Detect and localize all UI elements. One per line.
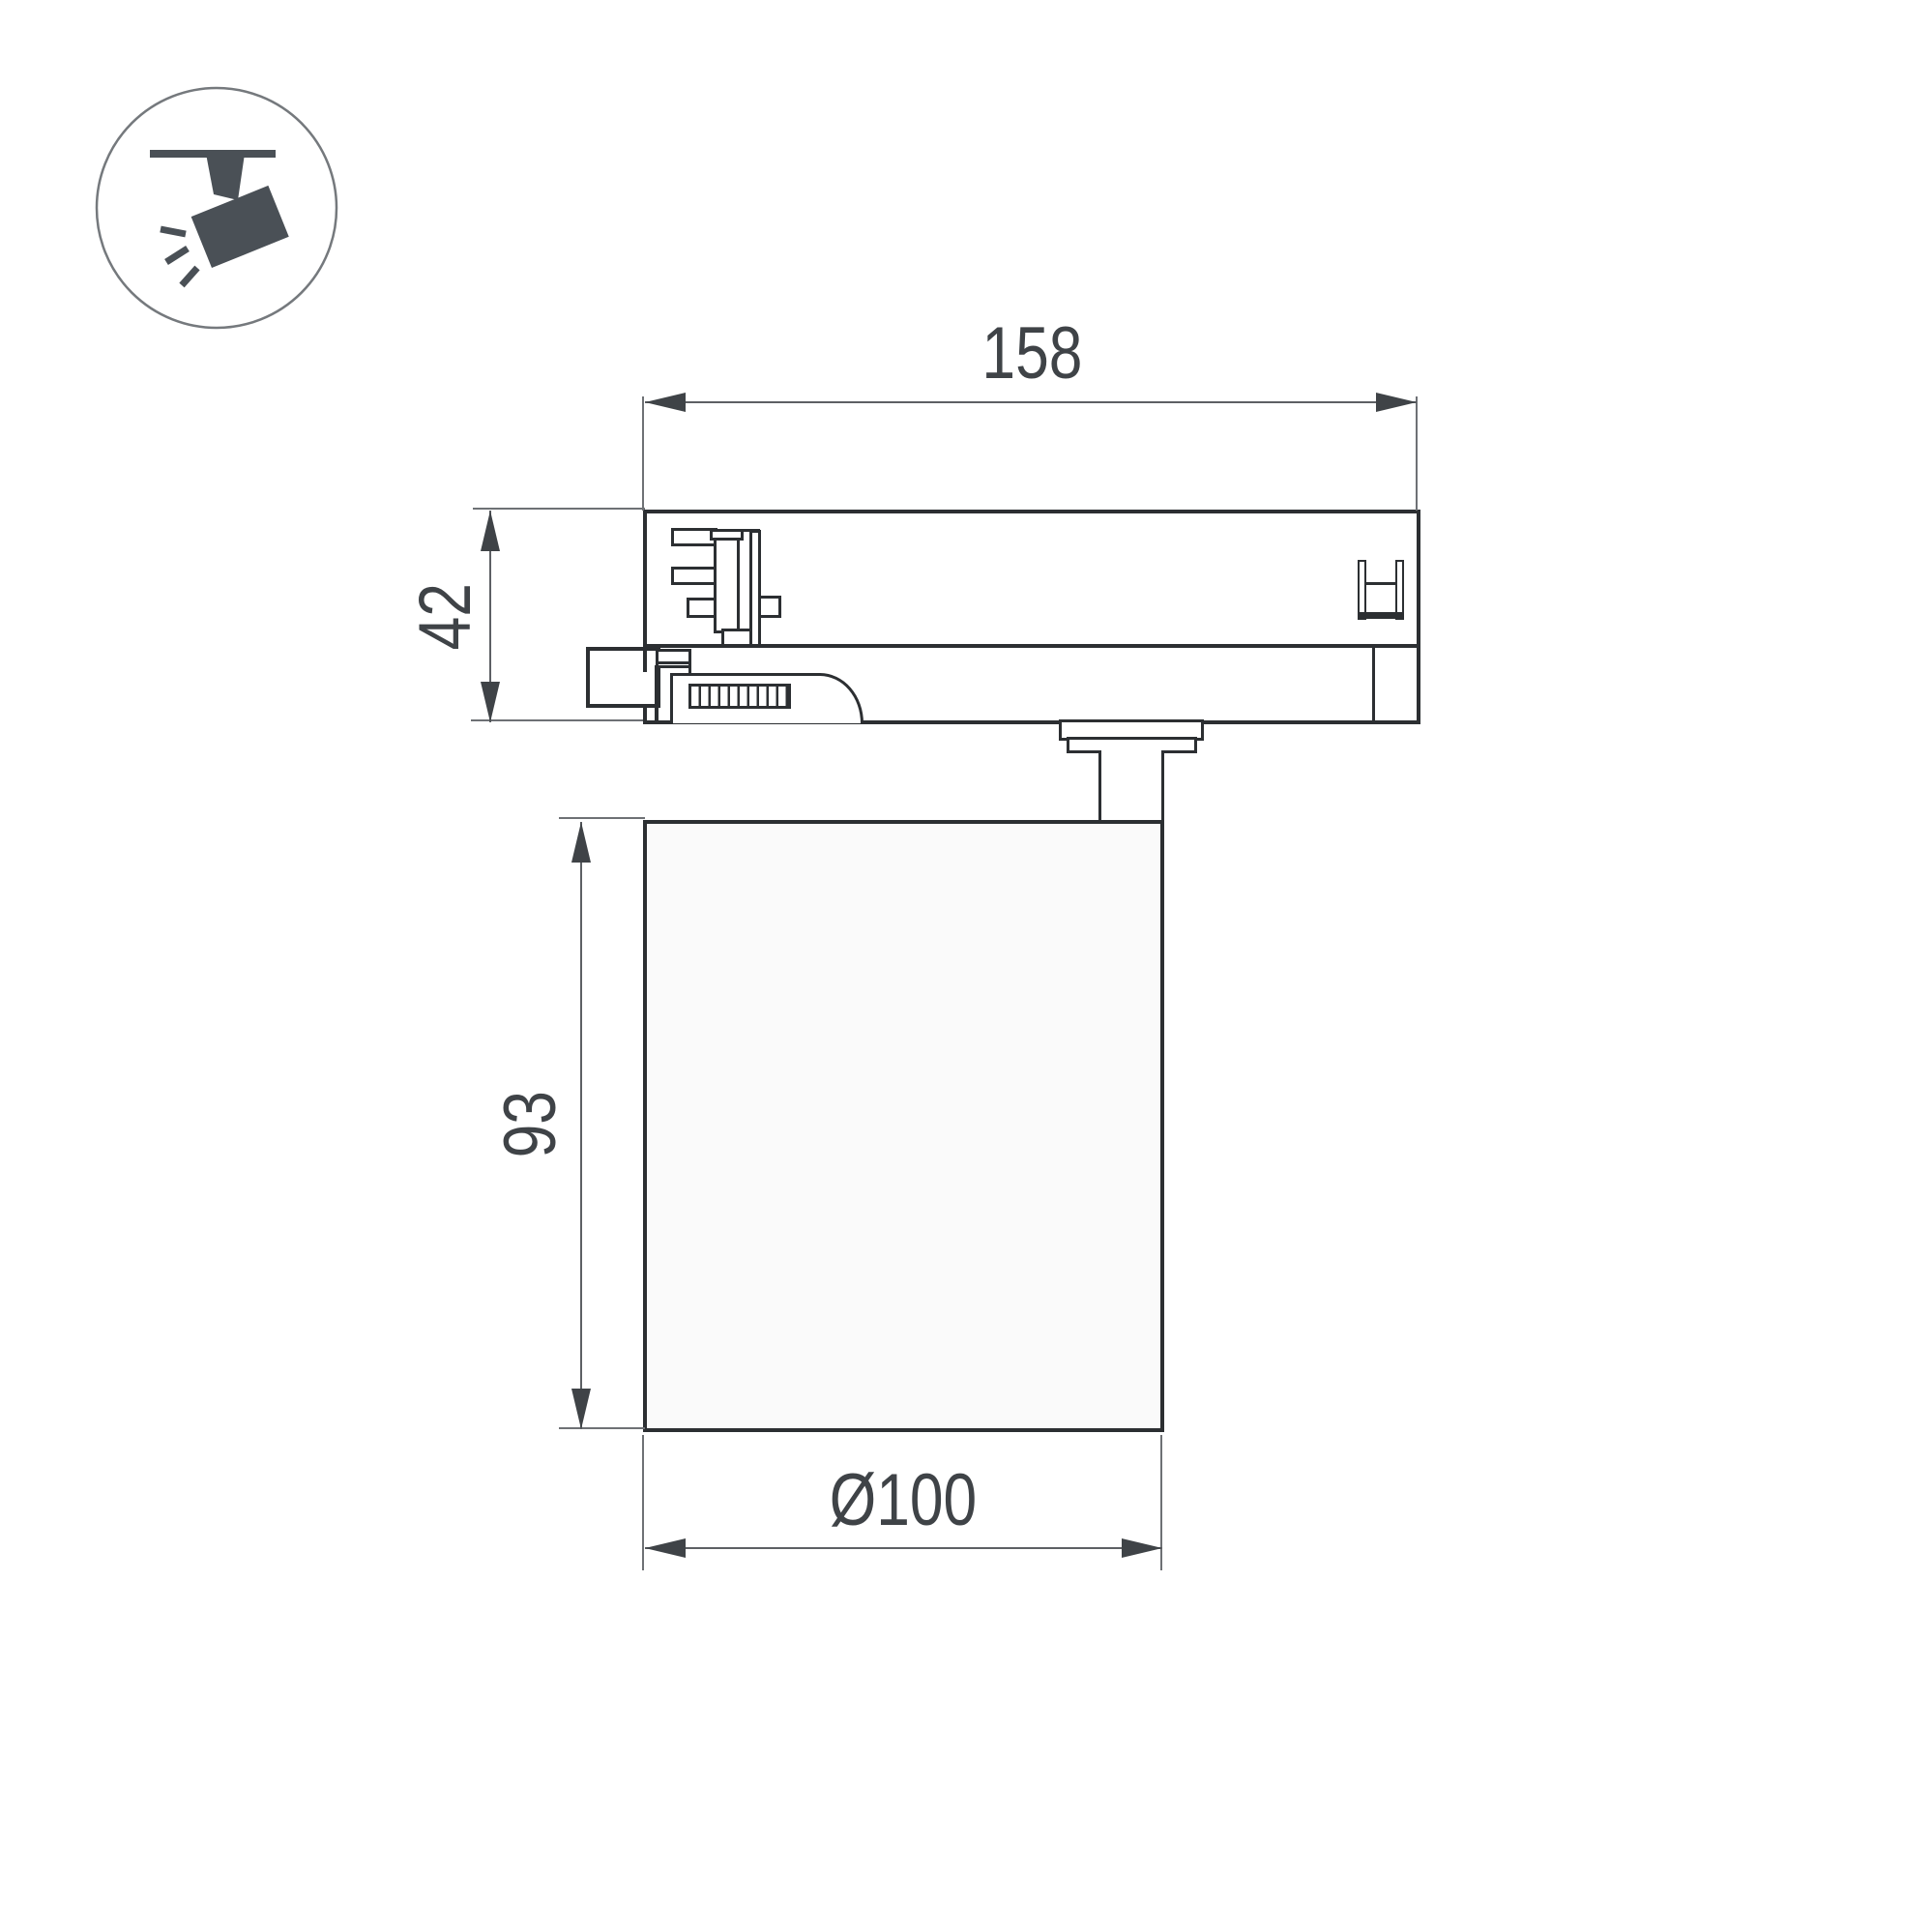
dim-line bbox=[645, 1547, 1162, 1549]
dim-label-158: 158 bbox=[838, 316, 1225, 392]
clip-left-leg bbox=[1358, 560, 1366, 620]
ext-line-right bbox=[1416, 396, 1418, 511]
technical-drawing-page: 158 42 93 Ø100 bbox=[0, 0, 1932, 1932]
arrowhead-up bbox=[571, 822, 591, 863]
dim-label-93: 93 bbox=[493, 1057, 569, 1192]
dim-label-diameter: Ø100 bbox=[710, 1463, 1097, 1538]
arrowhead-down bbox=[481, 682, 500, 722]
clip-right-leg bbox=[1395, 560, 1404, 620]
clip-crossbar bbox=[1364, 582, 1397, 585]
adjustment-dial bbox=[688, 684, 791, 709]
lock-lever-box bbox=[586, 647, 660, 708]
mount-stem bbox=[1098, 750, 1164, 824]
arrowhead-left bbox=[645, 393, 686, 412]
lamp-body bbox=[643, 820, 1164, 1432]
dim-line bbox=[580, 822, 582, 1429]
ext-line-top bbox=[473, 508, 645, 510]
dim-label-42: 42 bbox=[408, 549, 483, 685]
ext-line-left bbox=[642, 396, 644, 511]
arrowhead-right bbox=[1122, 1538, 1162, 1558]
arrowhead-left bbox=[645, 1538, 686, 1558]
ext-line-left bbox=[642, 1435, 644, 1570]
arrowhead-right bbox=[1376, 393, 1417, 412]
body-edge-stub bbox=[643, 647, 647, 672]
contact-pin-cap bbox=[710, 529, 744, 541]
arrowhead-up bbox=[481, 511, 500, 551]
contact-prong-mid bbox=[671, 567, 717, 585]
latch-tab bbox=[656, 649, 691, 668]
contact-pin bbox=[714, 536, 740, 633]
latch-line-a bbox=[655, 665, 659, 722]
ext-line-top bbox=[559, 817, 645, 819]
contact-pin-foot bbox=[721, 629, 752, 647]
latch-tab-line bbox=[659, 661, 688, 664]
arrowhead-down bbox=[571, 1389, 591, 1429]
clip-base bbox=[1358, 612, 1404, 619]
adapter-plate-divider bbox=[1372, 646, 1375, 722]
track-spotlight-icon bbox=[91, 82, 342, 334]
contact-side-notch bbox=[758, 596, 781, 618]
dim-line bbox=[645, 401, 1417, 403]
